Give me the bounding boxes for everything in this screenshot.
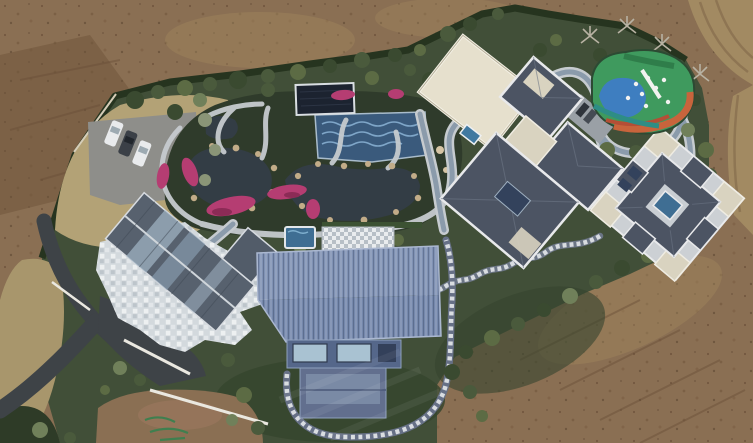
deck-window — [337, 344, 371, 362]
blue-tiled-pool — [315, 112, 428, 162]
barn-roof-ribs — [257, 246, 441, 342]
barn-south-deck — [287, 340, 401, 418]
dirt-patch-tint — [138, 400, 222, 430]
playground — [592, 50, 694, 134]
aerial-photo — [0, 0, 753, 443]
aerial-photo-canvas — [0, 0, 753, 443]
spa-pool — [285, 227, 315, 248]
deck-window — [293, 344, 327, 362]
